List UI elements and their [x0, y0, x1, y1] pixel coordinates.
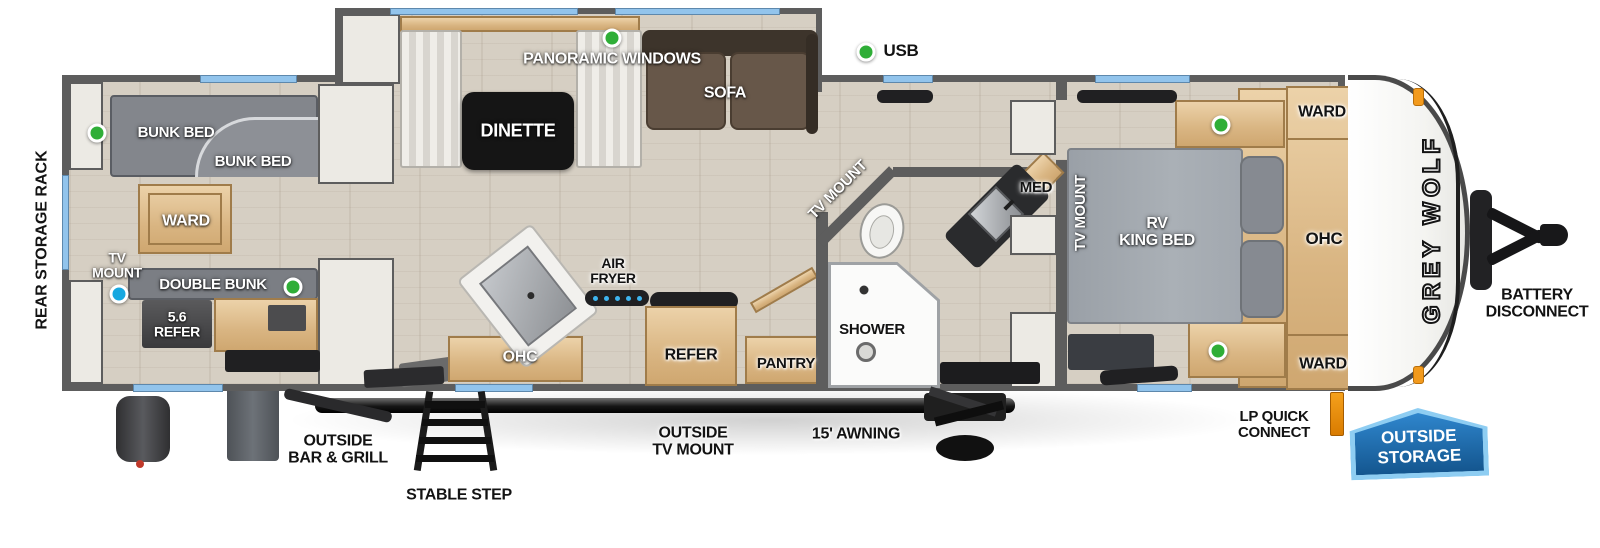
hitch-arm-lower: [1486, 228, 1546, 266]
bedroom-tv-top: [1077, 90, 1177, 103]
ward-front-label: WARD: [1298, 103, 1346, 120]
cooktop-knob: [637, 296, 642, 301]
rear-slide-tray: [227, 391, 279, 461]
outside-bar-grill-label: OUTSIDE BAR & GRILL: [285, 433, 391, 468]
outside-kitchen-griddle: [225, 350, 320, 372]
bunk-bed-upper-label: BUNK BED: [138, 125, 215, 141]
lp-quick-connect-label: LP QUICK CONNECT: [1227, 409, 1321, 441]
usb-indicator-nightstand-rear: [1209, 342, 1228, 361]
stable-step-ladder: [408, 391, 504, 475]
floorplan-canvas: GREY WOLF OUTSIDE STORAGE BU: [0, 0, 1600, 548]
divider-wall-top: [318, 84, 394, 184]
entry2-landing: [940, 362, 1040, 384]
wardrobe-divider-top: [1288, 138, 1352, 140]
outside-storage-label: OUTSIDE STORAGE: [1368, 426, 1469, 469]
tv-mount-label-bedroom: TV MOUNT: [1073, 175, 1089, 251]
dinette-label: DINETTE: [481, 122, 556, 141]
bedroom-left-wall-top: [1056, 82, 1067, 100]
outside-tv-mount-label: OUTSIDE TV MOUNT: [647, 425, 739, 460]
stable-step-label: STABLE STEP: [406, 486, 512, 503]
bath-cabinet-mid: [1010, 215, 1057, 255]
shower-label: SHOWER: [839, 322, 905, 338]
bunk-bed-lower-label: BUNK BED: [215, 154, 292, 170]
fold-step-base: [936, 435, 994, 461]
air-fryer-cooktop: [585, 290, 649, 306]
rear-grill-valve: [136, 460, 144, 468]
double-bunk-label: DOUBLE BUNK: [159, 277, 267, 293]
sofa: [642, 30, 818, 136]
step-tread: [422, 419, 488, 426]
entry2-fold-steps: [920, 391, 1012, 463]
rear-storage-rack-label: REAR STORAGE RACK: [33, 150, 50, 329]
window-slide-right: [615, 8, 780, 15]
tv-indicator-bunkroom: [110, 285, 129, 304]
outside-kitchen-appliance: [268, 305, 306, 331]
bedroom-ohc-label: OHC: [1306, 230, 1343, 248]
battery-disconnect-label: BATTERY DISCONNECT: [1479, 287, 1595, 322]
divider-wall-bottom: [318, 258, 394, 386]
med-label: MED: [1020, 180, 1052, 196]
usb-indicator-nightstand-front: [1212, 116, 1231, 135]
nightstand-rear: [1188, 322, 1286, 378]
window-slide-left: [390, 8, 578, 15]
sofa-label: SOFA: [704, 86, 746, 103]
window-rear-top: [200, 75, 297, 83]
step-tread: [425, 401, 485, 408]
window-rear-side: [62, 175, 69, 270]
step-tread: [416, 455, 494, 462]
shower-drain: [860, 286, 869, 295]
air-fryer-label: AIR FRYER: [586, 256, 640, 286]
window-bedroom-bottom: [1137, 384, 1192, 392]
cooktop-knob: [604, 296, 609, 301]
cooktop-knob: [615, 296, 620, 301]
kitchen-ohc-label: OHC: [503, 350, 538, 367]
ward-label-bunkroom: WARD: [162, 214, 210, 231]
rv-king-bed-label-line2: KING BED: [1119, 233, 1195, 250]
bedroom-media-console: [1068, 334, 1154, 370]
bed-pillow-bottom: [1240, 240, 1284, 318]
marker-light-top: [1413, 88, 1424, 106]
pantry-label: PANTRY: [757, 356, 815, 372]
rv-king-bed-label: RV KING BED: [1119, 216, 1195, 250]
sofa-arm-right: [806, 34, 818, 134]
usb-legend-label: USB: [884, 42, 919, 60]
tv-mount-label-bunkroom: TV MOUNT: [87, 250, 147, 279]
usb-indicator-double-bunk: [284, 278, 303, 297]
awning-label: 15' AWNING: [812, 425, 900, 442]
usb-indicator-legend-dot: [857, 43, 876, 62]
wardrobe-divider-bottom: [1288, 334, 1352, 336]
marker-light-bottom: [1413, 366, 1424, 384]
toilet-seat: [866, 213, 898, 252]
rear-grill-tank: [116, 396, 170, 462]
rv-king-bed-label-line1: RV: [1119, 216, 1195, 233]
step-tread: [419, 437, 491, 444]
bed-pillow-top: [1240, 156, 1284, 234]
rear-refer-label: 5.6 REFER: [149, 309, 205, 338]
hall-tv-shelf: [877, 90, 933, 103]
cooktop-knob: [593, 296, 598, 301]
window-rear-bottom: [133, 384, 223, 392]
dinette-bench-left: [400, 30, 462, 168]
kitchen-refer-label: REFER: [665, 346, 718, 363]
lp-connector: [1330, 392, 1344, 436]
shower-faucet: [856, 342, 876, 362]
usb-indicator-dinette: [603, 29, 622, 48]
slide-left-wall-panel: [341, 14, 400, 84]
window-bedroom-top: [1095, 75, 1190, 83]
brand-logo: GREY WOLF: [1419, 134, 1444, 324]
window-galley-top: [883, 75, 933, 83]
panoramic-windows-label: PANORAMIC WINDOWS: [523, 52, 701, 69]
hitch-tongue: [1540, 224, 1568, 246]
usb-indicator-bunkroom: [88, 124, 107, 143]
hitch-coupler-bar: [1470, 190, 1492, 290]
rear-wall-panel-bottom: [69, 280, 103, 384]
ward-rear-label: WARD: [1299, 355, 1347, 372]
bedroom-left-wall-main: [1056, 160, 1067, 390]
cooktop-knob: [626, 296, 631, 301]
bath-cabinet-top: [1010, 100, 1056, 155]
